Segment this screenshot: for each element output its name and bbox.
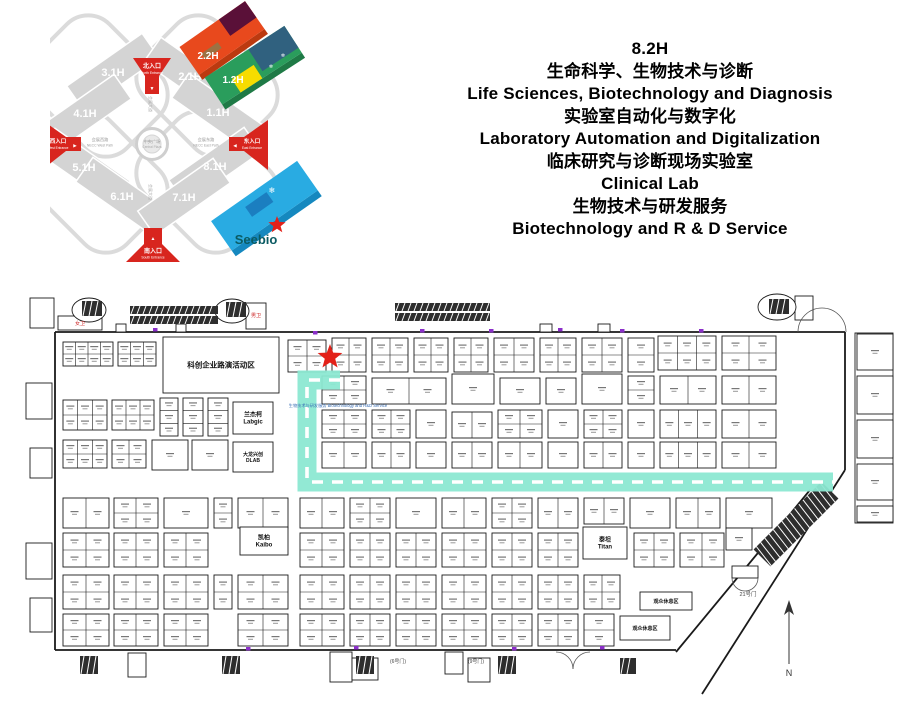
structure [540,324,552,332]
booth-text-mark [145,542,150,543]
booth-text-mark [478,453,486,454]
booth-text-mark [520,584,525,585]
booth-text-mark [378,559,383,560]
booth-text-mark [168,456,173,457]
booth-text-mark [123,521,128,522]
booth-text-mark [351,381,359,382]
booth-text-mark [665,362,670,363]
booth-text-mark [307,599,315,600]
door-arc [556,652,573,669]
hatched-structure [395,313,490,321]
booth-text-mark [134,445,142,446]
plan-label: N [786,668,793,678]
booth-text-mark [471,582,479,583]
booth-text-mark [760,345,765,346]
booth-text-mark [451,559,456,560]
booth-text-mark [353,432,358,433]
booth-text-mark [500,521,505,522]
booth-text-mark [565,364,570,365]
booth-text-mark [498,504,506,505]
booth-text-mark [609,415,617,416]
booth-text-mark [273,601,278,602]
booth-text-mark [94,557,102,558]
booth-text-mark [331,584,336,585]
booth-text-mark [672,391,677,392]
booth-text-mark [732,388,740,389]
booth-text-mark [566,601,571,602]
booth-text-mark [376,519,384,520]
booth-text-mark [451,584,456,585]
booth-text-mark [612,512,617,513]
booth-text-mark [331,639,336,640]
booth-text-mark [195,542,200,543]
booth-text-mark [683,511,691,512]
booth-text-mark [356,636,364,637]
booth-text-mark [376,582,384,583]
booth-text-mark [95,639,100,640]
booth-text-mark [639,425,644,426]
booth-text-mark [397,453,405,454]
booth-text-mark [90,346,98,347]
booth-text-mark [248,584,253,585]
booth-text-mark [79,361,84,362]
booth-text-mark [402,582,410,583]
booth-text-mark [97,462,102,463]
booth-text-mark [665,345,670,346]
booth-text-mark [329,557,337,558]
structure [330,652,352,682]
booth-text-mark [272,620,280,621]
booth-text-mark [145,623,150,624]
booth-text-mark [689,542,694,543]
booth-text-mark [565,347,570,348]
booth-text-mark [518,557,526,558]
booth-text-mark [171,582,179,583]
booth-text-mark [143,421,151,422]
booth-text-mark [307,582,315,583]
booth-text-mark [191,418,196,419]
hatched-structure [620,658,636,674]
booth-text-mark [353,398,358,399]
booth-text-mark [378,429,386,430]
booth-text-mark [193,636,201,637]
booth-text-mark [546,623,551,624]
booth-text-mark [660,540,668,541]
booth-text-mark [732,422,740,423]
booth-text-mark [498,557,506,558]
booth-text-mark [351,415,359,416]
booth-text-mark [422,620,430,621]
booth-text-mark [143,519,151,520]
booth-text-mark [182,511,190,512]
booth-label: 兰杰柯Labgic [243,411,263,426]
booth-text-mark [873,483,878,484]
booth-text-mark [145,506,150,507]
booth-text-mark [135,349,140,350]
booth-text-mark [131,423,136,424]
booth-text-mark [329,636,337,637]
booth-text-mark [507,456,512,457]
booth-text-mark [104,349,109,350]
booth-text-mark [759,388,767,389]
booth-text-mark [129,421,137,422]
booth-text-mark [737,540,742,541]
booth-text-mark [735,537,743,538]
booth-text-mark [564,582,572,583]
booth-text-mark [732,343,740,344]
booth-text-mark [732,453,740,454]
booth-text-mark [143,620,151,621]
booth-text-mark [522,347,527,348]
booth-text-mark [120,346,128,347]
booth-text-mark [871,512,879,513]
hatched-structure [82,301,102,316]
booth-text-mark [146,358,154,359]
booth-text-mark [83,448,88,449]
booth-text-mark [609,453,617,454]
booth-text-mark [610,347,615,348]
facility-tick [699,329,704,333]
booth-text-mark [221,584,226,585]
booth-text-mark [397,429,405,430]
booth-text-mark [221,506,226,507]
booth-text-mark [189,415,197,416]
booth-text-mark [871,437,879,438]
booth-text-mark [564,599,572,600]
booth-text-mark [518,519,526,520]
booth-text-mark [609,601,614,602]
booth-text-mark [704,456,709,457]
booth-text-mark [590,429,598,430]
booth-text-mark [356,582,364,583]
booth-text-mark [639,364,644,365]
booth-text-mark [143,557,151,558]
booth-text-mark [684,422,692,423]
booth-text-mark [871,480,879,481]
booth-text-mark [97,448,102,449]
booth-text-mark [460,456,465,457]
booth-text-mark [873,396,878,397]
booth-text-mark [273,623,278,624]
booth-text-mark [104,361,109,362]
door-arc [573,652,590,669]
plan-label: (6号门) [390,658,406,665]
booth-text-mark [94,636,102,637]
booth-text-mark [329,599,337,600]
booth-text-mark [664,343,672,344]
booth-text-mark [248,623,253,624]
booth-text-mark [500,345,508,346]
booth-text-mark [689,559,694,560]
booth-text-mark [449,599,457,600]
booth-text-mark [307,636,315,637]
structure [598,324,610,332]
booth-text-mark [437,347,442,348]
booth-text-mark [96,445,104,446]
booth-text-mark [449,511,457,512]
structure [732,566,758,578]
booth-text-mark [206,453,214,454]
booth-text-mark [544,582,552,583]
booth [660,442,716,468]
booth-text-mark [379,418,384,419]
floorplan: 科创企业路演活动区兰杰柯Labgic大龙兴创DLAB凯柏Kaibo泰坦Titan… [0,0,912,705]
booth-text-mark [354,362,362,363]
booth-text-mark [518,636,526,637]
booth [857,506,893,522]
booth-text-mark [704,425,709,426]
booth-text-mark [358,623,363,624]
booth-text-mark [687,557,695,558]
booth-text-mark [564,636,572,637]
booth-text-mark [709,557,717,558]
booth-text-mark [402,557,410,558]
booth-text-mark [422,582,430,583]
booth-text-mark [436,362,444,363]
booth-text-mark [219,582,227,583]
booth-text-mark [117,445,125,446]
booth-text-mark [429,456,434,457]
booth-text-mark [460,347,465,348]
booth-text-mark [118,448,123,449]
booth-text-mark [358,639,363,640]
booth-text-mark [81,459,89,460]
booth-text-mark [171,557,179,558]
booth-text-mark [414,514,419,515]
booth-text-mark [143,599,151,600]
hatched-structure [395,303,490,311]
booth-text-mark [637,345,645,346]
booth-text-mark [247,599,255,600]
booth-text-mark [500,639,505,640]
booth-text-mark [121,557,129,558]
booth-text-mark [376,599,384,600]
booth-text-mark [597,639,602,640]
booth-text-mark [642,559,647,560]
booth-text-mark [518,582,526,583]
booth-text-mark [173,584,178,585]
booth [208,398,228,436]
booth-text-mark [398,456,403,457]
booth-text-mark [502,364,507,365]
booth-text-mark [473,623,478,624]
booth-text-mark [607,582,615,583]
booth-text-mark [449,620,457,621]
booth-text-mark [449,557,457,558]
booth-text-mark [610,432,615,433]
booth-text-mark [72,623,77,624]
booth-text-mark [195,639,200,640]
hatched-structure [769,299,789,314]
booth-text-mark [424,559,429,560]
booth [548,442,578,468]
booth-text-mark [123,601,128,602]
booth-text-mark [505,415,513,416]
booth-text-mark [95,559,100,560]
booth-text-mark [595,620,603,621]
booth-text-mark [294,346,302,347]
booth-text-mark [500,623,505,624]
booth-text-mark [473,559,478,560]
booth-text-mark [733,425,738,426]
booth-text-mark [193,620,201,621]
booth-text-mark [705,511,713,512]
booth-text-mark [309,623,314,624]
booth-text-mark [329,620,337,621]
booth-text-mark [422,599,430,600]
hatched-structure [222,656,240,674]
booth-text-mark [219,519,227,520]
booth-text-mark [193,540,201,541]
booth-text-mark [424,542,429,543]
booth-text-mark [709,540,717,541]
booth-text-mark [733,456,738,457]
booth-text-mark [195,559,200,560]
booth-text-mark [544,620,552,621]
booth-text-mark [247,620,255,621]
booth-text-mark [590,509,598,510]
booth-text-mark [398,432,403,433]
booth-text-mark [314,365,319,366]
booth-text-mark [71,557,79,558]
booth-text-mark [520,623,525,624]
booth-text-mark [520,601,525,602]
booth-text-mark [437,364,442,365]
booth-text-mark [273,584,278,585]
booth-text-mark [404,584,409,585]
booth-text-mark [527,429,535,430]
booth-text-mark [529,432,534,433]
booth [582,374,622,404]
booth-text-mark [544,599,552,600]
booth-text-mark [143,582,151,583]
facility-tick [512,647,517,651]
booth-text-mark [759,422,767,423]
booth-text-mark [68,462,73,463]
booth-text-mark [546,559,551,560]
booth-text-mark [564,557,572,558]
plan-label: (9号门) [468,658,484,665]
booth-text-mark [498,540,506,541]
booth-text-mark [544,557,552,558]
booth-text-mark [648,514,653,515]
booth-text-mark [686,425,691,426]
booth-text-mark [471,599,479,600]
booth-text-mark [193,599,201,600]
booth-text-mark [376,540,384,541]
booth-text-mark [313,362,321,363]
booth-text-mark [527,415,535,416]
booth-text-mark [184,514,189,515]
booth-text-mark [171,540,179,541]
booth-text-mark [639,398,644,399]
booth-text-mark [248,514,253,515]
booth-text-mark [94,511,102,512]
booth-text-mark [376,636,384,637]
booth-text-mark [189,402,197,403]
booth-text-mark [711,542,716,543]
booth-text-mark [637,395,645,396]
booth-text-mark [733,391,738,392]
booth-text-mark [331,456,336,457]
booth-text-mark [422,557,430,558]
booth-text-mark [145,601,150,602]
booth-text-mark [145,639,150,640]
booth-text-mark [590,415,598,416]
booth-text-mark [458,423,466,424]
booth-text-mark [640,557,648,558]
booth-text-mark [247,636,255,637]
booth-text-mark [378,623,383,624]
booth-text-mark [115,406,123,407]
booth [546,378,576,404]
booth-text-mark [67,361,72,362]
booth-text-mark [760,425,765,426]
booth-text-mark [66,406,74,407]
booth-text-mark [471,511,479,512]
facility-tick [246,647,251,651]
booth-text-mark [72,584,77,585]
booth-text-mark [351,429,359,430]
booth-text-mark [219,504,227,505]
plan-label: 生物技术与研发服务 Biotechnology and R&D Service [289,402,388,409]
booth-text-mark [356,504,364,505]
booth-text-mark [309,559,314,560]
booth-text-mark [547,347,552,348]
booth-text-mark [94,582,102,583]
facility-tick [620,329,625,333]
booth-text-mark [591,432,596,433]
booth-text-mark [123,542,128,543]
booth-text-mark [173,601,178,602]
structure [30,298,54,328]
booth-text-mark [608,362,616,363]
booth-text-mark [402,540,410,541]
booth-text-mark [700,391,705,392]
booth-text-mark [458,453,466,454]
booth-text-mark [307,540,315,541]
booth-text-mark [639,456,644,457]
booth-text-mark [378,542,383,543]
booth-text-mark [94,620,102,621]
booth-text-mark [639,384,644,385]
booth-text-mark [351,453,359,454]
booth-text-mark [498,519,506,520]
booth-text-mark [873,515,878,516]
booth-text-mark [71,540,79,541]
booth-text-mark [72,514,77,515]
booth-text-mark [449,540,457,541]
booth-text-mark [520,521,525,522]
booth-text-mark [698,388,706,389]
structure [128,653,146,677]
booth-text-mark [309,601,314,602]
booth-text-mark [760,362,765,363]
booth-text-mark [103,358,111,359]
booth-text-mark [759,343,767,344]
booth-text-mark [71,620,79,621]
booth-text-mark [123,623,128,624]
booth-text-mark [745,511,753,512]
booth-text-mark [561,425,566,426]
booth-text-mark [309,584,314,585]
booth-text-mark [122,349,127,350]
booth-label: 科创企业路演活动区 [187,360,255,370]
booth-text-mark [459,345,467,346]
booth-text-mark [134,459,142,460]
booth-text-mark [66,421,74,422]
booth-text-mark [123,506,128,507]
